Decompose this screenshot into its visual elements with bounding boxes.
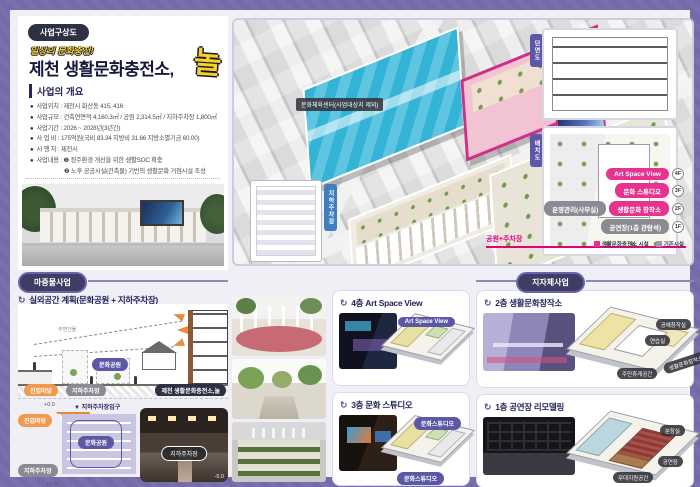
sun-ray-icon bbox=[177, 326, 188, 334]
card-4f-artspace: ↻ 4층 Art Space View Art Space View bbox=[332, 290, 470, 386]
tree-shape bbox=[298, 365, 322, 385]
parking-plan-inset bbox=[250, 180, 322, 262]
floor-row-1f: 공연장(1층 관람석) 1F bbox=[601, 219, 684, 234]
project-info-panel: 사업구상도 일상의 문화충전! 제천 생활문화충전소, 놀 사업의 개요 ●사업… bbox=[18, 16, 228, 270]
hall-photo bbox=[483, 417, 575, 475]
sun-ray-icon bbox=[172, 310, 185, 321]
plan-label: 문화스튜디오 bbox=[397, 472, 444, 485]
card-2f-makerspace: ↻ 2층 생활문화창작소 공예창작실 연습실 생활문화창작소 bbox=[476, 290, 694, 388]
arrow-icon: ↻ bbox=[340, 298, 347, 309]
site-excluded-label: 문화체육센터(사업대상지 제외) bbox=[296, 98, 383, 111]
overview-item: ●시 행 자 : 제천시 bbox=[30, 145, 224, 156]
plan-label: Art Space View bbox=[398, 317, 455, 327]
legend-swatch-gray bbox=[656, 241, 662, 247]
overview-heading: 사업의 개요 bbox=[29, 84, 83, 98]
overview-item: ●사업위치 : 제천시 화산동 415, 416 bbox=[30, 102, 224, 113]
ground-shape bbox=[22, 246, 224, 266]
overview-item: ●사 업 비 : 175억원(국비 83.34 지방비 31.66 지방소멸기금… bbox=[30, 134, 224, 145]
bullet-icon: ● bbox=[30, 124, 33, 135]
priming-project-section: 마중물사업 ↻ 실외공간 계획(문화공원 + 지하주차장) 주변건물 bbox=[18, 272, 228, 472]
parking-entry-diagram: +0.0 ▼ 지하주차장입구 문화공원 진입마당 지하주차장 +0.0 지하주차… bbox=[18, 402, 228, 487]
level-mark: +0.0 bbox=[46, 482, 57, 487]
parking-plan-drawing bbox=[256, 186, 316, 256]
station-label: 제천 생활문화충전소,놀 bbox=[155, 384, 226, 396]
bullet-icon: ● bbox=[30, 102, 33, 113]
arrow-icon: ↻ bbox=[484, 402, 491, 413]
media-glow bbox=[345, 321, 371, 331]
photo-streak bbox=[487, 357, 567, 363]
bullet-icon: ● bbox=[30, 156, 33, 167]
divider bbox=[26, 178, 220, 179]
nearby-building-note: 주변건물 bbox=[58, 326, 76, 333]
makerspace-photo bbox=[483, 313, 575, 371]
divider bbox=[18, 398, 228, 399]
parking-plan-tab: 지하주차장 bbox=[324, 184, 337, 231]
parking-entrance-label: ▼ 지하주차장입구 bbox=[74, 402, 120, 411]
aerial-render-panel: 문화체육센터(사업대상지 제외) 문화공원 지하주차장 지하주차장 단면도 배치… bbox=[232, 18, 694, 266]
arrow-icon: ↻ bbox=[340, 400, 347, 411]
ceiling-grid bbox=[487, 421, 571, 451]
overview-item: ●사업내용 : ❶ 정주환경 개선을 위한 생활SOC 확충 bbox=[30, 156, 224, 167]
floor-row-4f: Art Space View 4F bbox=[606, 168, 684, 180]
overview-item: ●사업기간 : 2026 ~ 2028년(3년간) bbox=[30, 124, 224, 135]
badge-line bbox=[476, 280, 516, 282]
overview-item-sub: ❷ 노후 공공시설(건축물) 기반의 생활문화 거점시설 조성 bbox=[30, 167, 224, 178]
park-pergola-photo bbox=[232, 296, 326, 356]
page-title-accent: 놀 bbox=[192, 37, 223, 83]
level-mark: -5.0 bbox=[215, 474, 224, 480]
studio-screen bbox=[347, 427, 371, 443]
culture-park-oval-label: 문화공원 bbox=[78, 436, 114, 449]
person-icon bbox=[33, 362, 36, 370]
legend-item: 기존시설 bbox=[656, 240, 684, 248]
floor-number: 2F bbox=[672, 203, 684, 215]
poster-inner: 사업구상도 일상의 문화충전! 제천 생활문화충전소, 놀 사업의 개요 ●사업… bbox=[10, 10, 690, 477]
room-label: 분장실 bbox=[660, 425, 685, 436]
plan-label: 문화스튜디오 bbox=[414, 417, 461, 430]
led-screen-shape bbox=[140, 200, 184, 226]
floor-number: 4F bbox=[672, 168, 684, 180]
card-1f-hall: ↻ 1층 공연장 리모델링 분장실 공연장 무대지원공간 bbox=[476, 394, 694, 487]
garage-photo-label: 지하주차장 bbox=[161, 446, 207, 461]
room-label: 연습실 bbox=[645, 335, 670, 346]
person-icon bbox=[134, 376, 137, 384]
garage-photo: 지하주차장 -5.0 bbox=[140, 408, 228, 482]
room-label: 공예창작실 bbox=[656, 319, 691, 330]
person-icon bbox=[90, 376, 93, 384]
poster-page: 사업구상도 일상의 문화충전! 제천 생활문화충전소, 놀 사업의 개요 ●사업… bbox=[0, 0, 700, 487]
tree-icon bbox=[70, 369, 77, 376]
room-label: 주민휴게공간 bbox=[617, 368, 657, 379]
photo-streak bbox=[493, 343, 563, 347]
overview-item: ●사업규모 : 건축연면적 4,160.3㎡ / 공원 2,314.5㎡ / 지… bbox=[30, 113, 224, 124]
floor-number: 1F bbox=[672, 221, 684, 233]
section-inset bbox=[542, 28, 678, 120]
underground-parking-label: 지하주차장 bbox=[66, 384, 106, 396]
tree-icon bbox=[114, 373, 121, 380]
bullet-icon: ● bbox=[30, 113, 33, 124]
park-path bbox=[259, 396, 300, 419]
house-outline bbox=[142, 352, 176, 370]
priming-badge: 마중물사업 bbox=[18, 272, 87, 293]
entry-yard-label: 진입마당 bbox=[18, 414, 52, 427]
floor-tag: 문화 스튜디오 bbox=[615, 183, 669, 198]
floor-tag: 공연장(1층 관람석) bbox=[601, 219, 669, 234]
room-label: 공연장 bbox=[658, 456, 683, 467]
entry-yard-label: 진입마당 bbox=[24, 384, 58, 396]
section-drawing bbox=[552, 37, 668, 111]
badge-line bbox=[586, 280, 694, 282]
station-section bbox=[188, 310, 228, 384]
card-3f-studio: ↻ 3층 문화 스튜디오 문화스튜디오 문화스튜디오 bbox=[332, 392, 470, 486]
tree-shape bbox=[300, 298, 322, 314]
legend-item: 생활문화충전소 시설 bbox=[594, 240, 649, 248]
legend-swatch-pink bbox=[594, 241, 600, 247]
badge-line bbox=[88, 280, 228, 282]
underground-parking-label: 지하주차장 bbox=[18, 464, 58, 477]
park-parking-line-label: 공원+주차장 bbox=[486, 234, 522, 244]
pergola-shape bbox=[252, 428, 306, 438]
tree-shape bbox=[272, 371, 292, 388]
floorplan-1f: 분장실 공연장 무대지원공간 bbox=[577, 409, 693, 483]
sun-ray-icon bbox=[172, 338, 185, 349]
building-outline bbox=[62, 350, 88, 384]
facade-render-image bbox=[22, 184, 224, 266]
municipal-project-section: 지자체사업 ↻ 2층 생활문화창작소 공 bbox=[476, 272, 694, 477]
overview-list: ●사업위치 : 제천시 화산동 415, 416 ●사업규모 : 건축연면적 4… bbox=[30, 102, 224, 178]
bullet-icon: ● bbox=[30, 134, 33, 145]
municipal-badge: 지자체사업 bbox=[516, 272, 585, 293]
floor-number: 3F bbox=[672, 185, 684, 197]
culture-park-oval-label: 문화공원 bbox=[92, 358, 128, 371]
red-plaza-floor bbox=[236, 326, 322, 352]
floor-row-2f: 운영관리(사무실) 생활문화 창작소 2F bbox=[544, 201, 684, 216]
floorplan-2f: 공예창작실 연습실 생활문화창작소 주민휴게공간 bbox=[577, 305, 693, 379]
card-title: ↻ 4층 Art Space View bbox=[340, 297, 462, 309]
bullet-icon: ● bbox=[30, 145, 33, 156]
ceiling-lights bbox=[148, 416, 220, 421]
arrow-icon: ↻ bbox=[484, 298, 491, 309]
floor-tag: 생활문화 창작소 bbox=[609, 201, 669, 216]
page-title: 제천 생활문화충전소, bbox=[29, 55, 174, 80]
level-mark: +0.0 bbox=[44, 402, 55, 408]
tree-shape bbox=[236, 298, 256, 314]
card-title: ↻ 3층 문화 스튜디오 bbox=[340, 399, 462, 411]
render-legend: 생활문화충전소 시설 기존시설 bbox=[594, 240, 684, 248]
roof-garden-photo bbox=[232, 422, 326, 482]
floor-tag: Art Space View bbox=[606, 168, 669, 180]
tree-shape bbox=[238, 367, 264, 389]
room-label: 무대지원공간 bbox=[613, 472, 653, 483]
concept-badge: 사업구상도 bbox=[28, 24, 89, 41]
hedge-rows bbox=[238, 440, 320, 476]
floor-tag-stack: Art Space View 4F 문화 스튜디오 3F 운영관리(사무실) 생… bbox=[544, 168, 684, 248]
park-trees-photo bbox=[232, 359, 326, 419]
priming-floor-cards: ↻ 4층 Art Space View Art Space View bbox=[232, 272, 470, 477]
floor-tag: 운영관리(사무실) bbox=[544, 201, 606, 216]
site-section-diagram: 주변건물 문화공원 진입마당 지하주차장 bbox=[18, 304, 228, 396]
floor-row-3f: 문화 스튜디오 3F bbox=[615, 183, 684, 198]
